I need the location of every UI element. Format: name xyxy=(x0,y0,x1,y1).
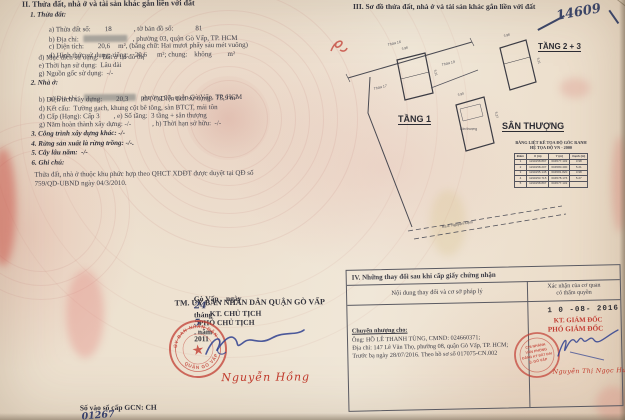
section3-title: III. Sơ đồ thửa đất, nhà ở và tài sản kh… xyxy=(353,3,535,11)
coord-table-body: 11190158.897604577.1323.9821190158.20760… xyxy=(514,159,588,187)
roof-plan-label: Sân thượng xyxy=(460,127,477,131)
note-line-1: Thửa đất, nhà ở thuộc khu phức hợp theo … xyxy=(34,170,253,179)
other-works-line: 3. Công trình xây dựng khác: -/- xyxy=(31,130,125,138)
dim-label: 3.98 xyxy=(401,46,408,51)
signer-name: Nguyễn Hồng xyxy=(221,371,310,383)
coordinate-table-block: BẢNG LIỆT KÊ TỌA ĐỘ GÓC RANH HỆ TỌA ĐỘ V… xyxy=(503,140,599,188)
handwritten-book-number: 01267 xyxy=(82,410,116,420)
dim-label: 5.21 xyxy=(536,57,541,64)
notes-heading: 6. Ghi chú: xyxy=(31,159,64,166)
date-received-stamp: 1 0 -08- 2016 xyxy=(547,305,619,316)
deputy-director-signature xyxy=(552,326,624,366)
floor1-label: TẦNG 1 xyxy=(398,114,431,125)
parcel-heading: 1. Thửa đất: xyxy=(30,11,66,18)
house-heading: 2. Nhà ở: xyxy=(31,79,58,86)
road-label: Ra đ. Nguyễn Kiệm xyxy=(441,219,473,229)
dim-label: 5.27 xyxy=(494,111,499,118)
dim-label: 5.21 xyxy=(433,69,438,76)
year-term-line: g) Năm hoàn thành xây dựng: -/- , h) Thờ… xyxy=(39,120,221,129)
coord-table-subtitle: HỆ TỌA ĐỘ VN - 2000 xyxy=(503,145,599,150)
neighbor-parcel-label: Thửa 17 xyxy=(373,84,388,91)
neighbor-parcel-label: Thửa 16 xyxy=(387,40,401,47)
floor23-label: TẦNG 2 + 3 xyxy=(538,42,581,52)
transfer-heading: Chuyển nhượng cho: xyxy=(352,327,408,335)
book-number-line: Số vào sổ cấp GCN: CH 01267 xyxy=(68,396,156,420)
forest-line: 4. Rừng sản xuất là rừng trồng: -/-. xyxy=(31,140,134,148)
approver-title-1: KT. GIÁM ĐỐC xyxy=(554,317,603,325)
section2-title: II. Thửa đất, nhà ở và tài sản khác gắn … xyxy=(22,0,195,9)
use-form-shared: m²; chung: không m² xyxy=(157,50,235,59)
scanned-land-certificate: II. Thửa đất, nhà ở và tài sản khác gắn … xyxy=(0,0,625,420)
coord-table: ĐiểmX (m)Y (m)Cạnh (m) 11190158.89760457… xyxy=(514,153,589,188)
note-line-2: 759/QD-UBND ngày 04/3/2010. xyxy=(35,180,127,188)
authority-line: TM. ỦY BAN NHÂN DÂN QUẬN GÒ VẤP xyxy=(175,298,325,307)
dim-label: 3.90 xyxy=(457,92,464,97)
table-row: 51190158.897604577.132 xyxy=(514,181,588,187)
dim-label: 3.98 xyxy=(503,33,510,38)
section4-title: IV. Những thay đổi sau khi cấp giấy chứn… xyxy=(352,271,496,282)
use-origin-line: g) Nguồn gốc sử dụng: -/- xyxy=(39,70,114,78)
neighbor-parcel-label: Thửa 19 xyxy=(441,60,455,67)
roof-label: SÂN THƯỢNG xyxy=(502,121,564,132)
chairman-signature xyxy=(198,322,310,364)
perennial-line: 5. Cây lâu năm: -/- xyxy=(31,149,87,156)
